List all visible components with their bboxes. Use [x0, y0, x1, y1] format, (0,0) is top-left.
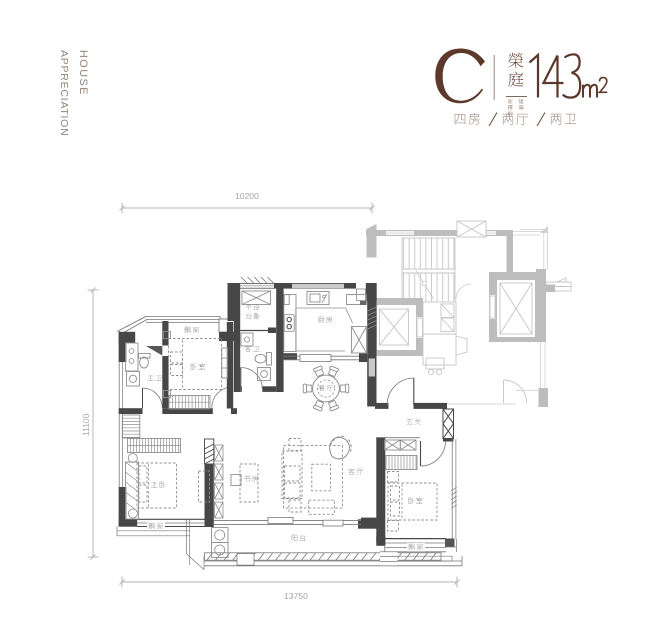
svg-text:APPRECIATION: APPRECIATION	[58, 50, 70, 136]
svg-text:13750: 13750	[284, 591, 308, 601]
svg-text:11100: 11100	[81, 413, 91, 436]
svg-text:HOUSE: HOUSE	[77, 50, 89, 96]
svg-text:10200: 10200	[235, 191, 259, 201]
